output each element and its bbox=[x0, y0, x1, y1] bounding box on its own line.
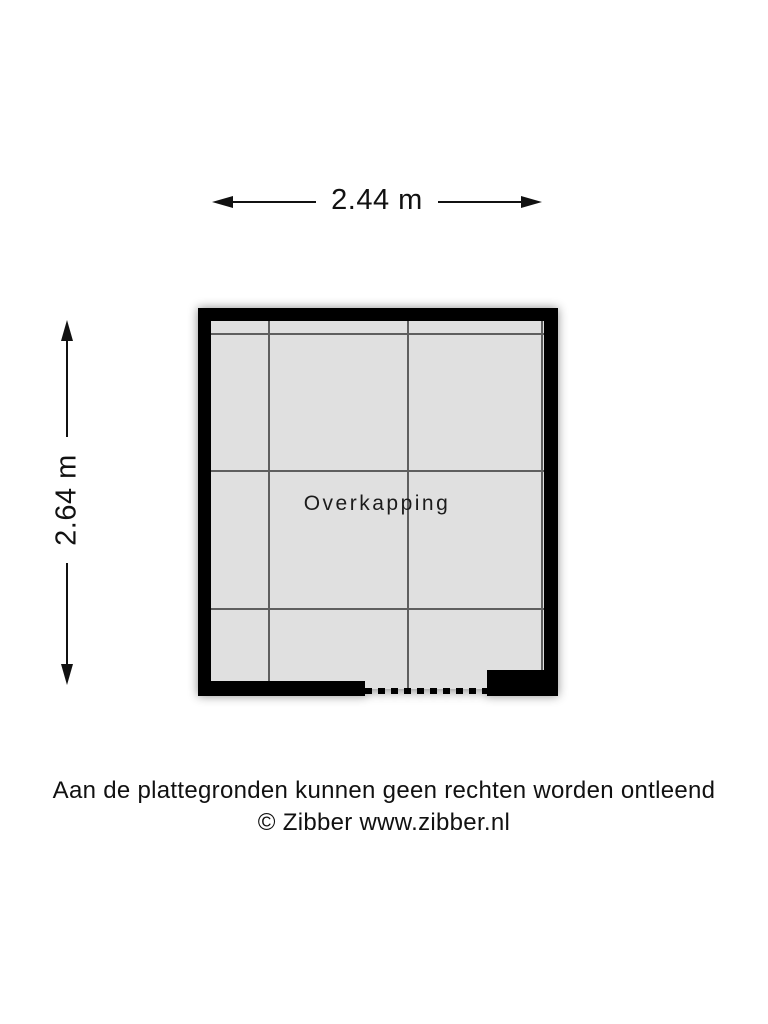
footer: Aan de plattegronden kunnen geen rechten… bbox=[0, 775, 768, 839]
dimension-height-label: 2.64 m bbox=[51, 454, 84, 546]
opening-dashed-line bbox=[365, 688, 487, 694]
copyright-text: © Zibber www.zibber.nl bbox=[0, 807, 768, 839]
dimension-line bbox=[66, 563, 68, 669]
roof-gridline-horizontal bbox=[211, 333, 544, 335]
roof-gridline-vertical bbox=[268, 321, 270, 681]
disclaimer-text: Aan de plattegronden kunnen geen rechten… bbox=[0, 775, 768, 807]
wall-top bbox=[198, 308, 558, 321]
dimension-line bbox=[66, 336, 68, 437]
arrow-down-icon bbox=[61, 664, 73, 685]
dimension-line bbox=[438, 201, 526, 203]
wall-bottom-left bbox=[198, 681, 365, 696]
arrow-right-icon bbox=[521, 196, 542, 208]
dimension-line bbox=[228, 201, 316, 203]
wall-left bbox=[198, 308, 211, 696]
roof-gridline-horizontal bbox=[211, 608, 544, 610]
dimension-width-label: 2.44 m bbox=[331, 184, 423, 217]
wall-right bbox=[544, 308, 558, 696]
dimension-width: 2.44 m bbox=[212, 189, 542, 215]
wall-bottom-right-step bbox=[487, 670, 558, 696]
roof-gridline-vertical bbox=[541, 321, 543, 670]
roof-gridline-horizontal bbox=[211, 470, 544, 472]
floorplan: Overkapping bbox=[198, 308, 558, 696]
room-label: Overkapping bbox=[304, 492, 451, 516]
